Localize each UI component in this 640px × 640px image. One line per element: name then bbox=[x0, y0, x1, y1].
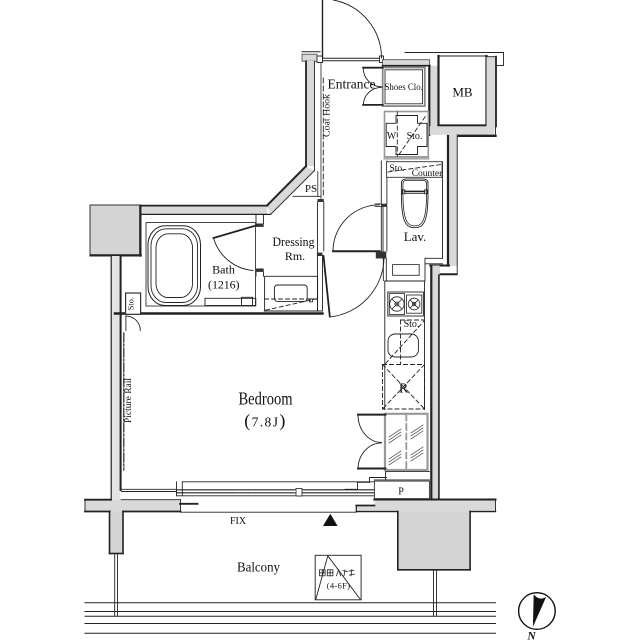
svg-text:Bath: Bath bbox=[212, 262, 235, 276]
svg-text:Shoes Clo.: Shoes Clo. bbox=[384, 83, 423, 93]
svg-text:Counter: Counter bbox=[412, 169, 443, 179]
svg-text:Picture Rail: Picture Rail bbox=[124, 378, 134, 423]
svg-text:Entrance: Entrance bbox=[328, 78, 376, 93]
svg-text:Rm.: Rm. bbox=[285, 249, 305, 263]
svg-text:Sto.: Sto. bbox=[404, 319, 420, 330]
svg-text:W: W bbox=[387, 131, 397, 142]
svg-text:R: R bbox=[399, 382, 409, 397]
svg-text:Lav.: Lav. bbox=[404, 229, 427, 244]
svg-text:Dressing: Dressing bbox=[273, 235, 316, 249]
svg-text:Sto.: Sto. bbox=[126, 297, 136, 310]
svg-text:Sto.: Sto. bbox=[407, 131, 423, 142]
svg-text:(4-6F): (4-6F) bbox=[327, 581, 351, 591]
svg-text:Bedroom: Bedroom bbox=[239, 389, 293, 409]
svg-text:PS: PS bbox=[305, 183, 317, 195]
svg-text:Sto.: Sto. bbox=[389, 164, 404, 174]
svg-text:(1216): (1216) bbox=[208, 277, 240, 291]
svg-text:P: P bbox=[398, 486, 404, 497]
svg-text:FIX: FIX bbox=[230, 516, 247, 527]
svg-text:Coat Hook: Coat Hook bbox=[323, 94, 333, 137]
svg-text:Balcony: Balcony bbox=[237, 560, 280, 575]
svg-text:N: N bbox=[526, 631, 536, 640]
svg-text:(7.8J): (7.8J) bbox=[244, 411, 287, 432]
svg-text:MB: MB bbox=[452, 85, 473, 100]
